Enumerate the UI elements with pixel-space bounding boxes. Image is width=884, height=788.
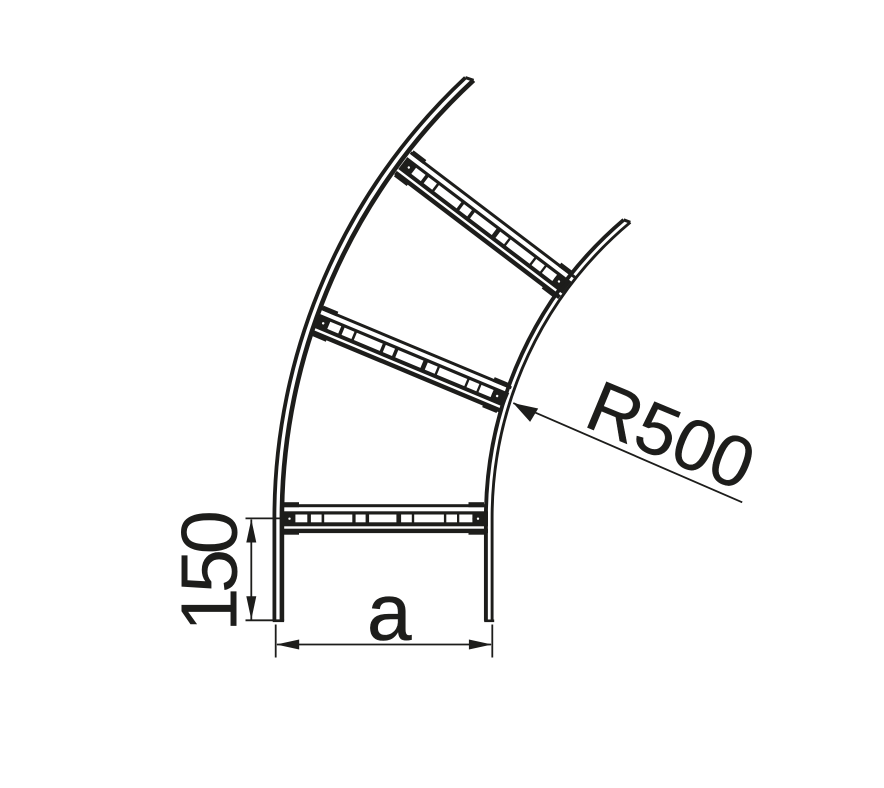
svg-text:a: a — [367, 568, 412, 657]
svg-text:150: 150 — [164, 510, 253, 632]
svg-text:R500: R500 — [576, 366, 766, 506]
